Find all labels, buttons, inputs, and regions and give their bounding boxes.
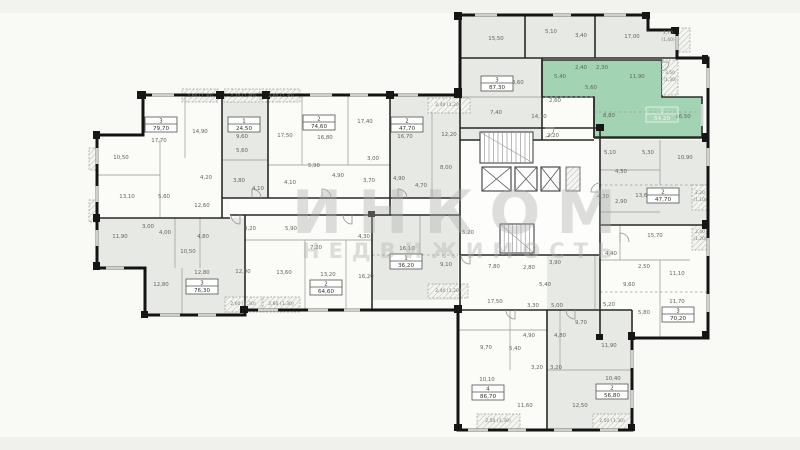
unit-area: 74,60: [311, 124, 327, 130]
room-area-label: 3,00: [142, 224, 155, 230]
room-area-label: 4,80: [197, 234, 210, 240]
room-area-label: 3,40: [575, 33, 588, 39]
floor-plan: 17,7014,9010,5013,104,205,6012,609,605,6…: [0, 0, 800, 450]
room-area-label: 5,60: [585, 85, 598, 91]
room-area-label: 15,70: [647, 233, 663, 239]
balcony-label: 3,50: [665, 70, 675, 76]
room-area-label: 12,80: [153, 282, 169, 288]
unit-area: 87,30: [489, 85, 505, 91]
unit-area: 47,70: [655, 197, 671, 203]
room-area-label: 17,50: [277, 133, 293, 139]
balcony-label: 2,40 (1,20): [435, 102, 461, 108]
unit-label[interactable]: 486,70: [472, 385, 504, 400]
balcony-label: 2,50 (1,30): [485, 418, 511, 424]
unit-area: 76,30: [194, 288, 210, 294]
room-area-label: 12,50: [572, 403, 588, 409]
balcony-label: 2,50 (1,30): [599, 418, 625, 424]
unit-area: 47,70: [399, 126, 415, 132]
balcony-label: 2,40 (1,20): [435, 288, 461, 294]
room-area-label: 16,70: [397, 134, 413, 140]
structural-column: [141, 311, 148, 318]
unit-rooms-count: 3: [676, 309, 679, 315]
room-area-label: 5,90: [308, 163, 321, 169]
unit-label[interactable]: 274,60: [303, 115, 335, 130]
room-area-label: 4,00: [159, 230, 172, 236]
balcony-label: 2,60 (1,30): [268, 301, 294, 307]
apartment-area: [458, 255, 547, 430]
watermark-line2: НЕДВИЖИМОСТЬ: [302, 239, 622, 263]
unit-label[interactable]: 247,70: [647, 188, 679, 203]
unit-label[interactable]: 370,20: [662, 307, 694, 322]
room-area-label: 11,60: [517, 403, 533, 409]
room-area-label: 13,20: [320, 272, 336, 278]
room-area-label: 10,90: [677, 155, 693, 161]
room-area-label: 17,40: [357, 119, 373, 125]
room-area-label: 2,20: [547, 133, 560, 139]
balcony-label: (1,20): [693, 236, 706, 242]
room-area-label: 11,10: [669, 271, 685, 277]
structural-column: [596, 334, 603, 340]
room-area-label: 3,20: [531, 365, 544, 371]
floor-plan-page: 17,7014,9010,5013,104,205,6012,609,605,6…: [0, 0, 800, 450]
room-area-label: 9,60: [236, 134, 249, 140]
structural-column: [702, 220, 708, 229]
unit-label[interactable]: 379,70: [145, 117, 177, 132]
structural-column: [93, 131, 100, 139]
room-area-label: 3,20: [550, 365, 563, 371]
room-area-label: 9,70: [480, 345, 493, 351]
balcony-label: 2,60 (1,30): [187, 93, 213, 99]
room-area-label: 5,80: [638, 310, 651, 316]
unit-label[interactable]: 247,70: [391, 117, 423, 132]
unit-area: 64,60: [318, 289, 334, 295]
balcony: [678, 28, 690, 52]
room-area-label: 10,10: [479, 377, 495, 383]
room-area-label: 11,70: [669, 299, 685, 305]
structural-column: [137, 91, 146, 99]
balcony-label: (1,40): [661, 37, 674, 43]
structural-column: [702, 331, 708, 339]
room-area-label: 14,90: [192, 129, 208, 135]
balcony-label: (1,30): [663, 77, 676, 83]
room-area-label: 12,00: [235, 269, 251, 275]
structural-column: [596, 124, 604, 131]
structural-column: [628, 332, 635, 340]
room-area-label: 4,50: [615, 169, 628, 175]
room-area-label: 8,80: [603, 113, 616, 119]
structural-column: [216, 91, 224, 99]
room-area-label: 5,10: [545, 29, 558, 35]
room-area-label: 5,40: [509, 346, 522, 352]
balcony-label: 2,20: [695, 190, 705, 196]
unit-rooms-count: 2: [324, 282, 327, 288]
room-area-label: 9,70: [575, 320, 588, 326]
room-area-label: 4,10: [252, 186, 265, 192]
unit-label[interactable]: 124,50: [228, 117, 260, 132]
room-area-label: 5,40: [554, 74, 567, 80]
structural-column: [454, 12, 462, 20]
room-area-label: 4,80: [554, 333, 567, 339]
balcony-label: 2,60 (1,30): [268, 93, 294, 99]
unit-area: 56,80: [604, 393, 620, 399]
room-area-label: 4,90: [523, 333, 536, 339]
unit-area: 79,70: [153, 126, 169, 132]
room-area-label: 11,90: [629, 74, 645, 80]
balcony-label: 2,70 (1,40): [230, 93, 256, 99]
room-area-label: 11,90: [112, 234, 128, 240]
room-area-label: 13,10: [119, 194, 135, 200]
balcony-label: 2,60 (1,30): [230, 301, 256, 307]
room-area-label: 10,50: [113, 155, 129, 161]
unit-rooms-count: 3: [159, 119, 162, 125]
balcony-label: (1,10): [693, 197, 706, 203]
unit-rooms-count: 2: [405, 119, 408, 125]
unit-area: 70,20: [670, 316, 686, 322]
unit-rooms-count: 1: [242, 119, 245, 125]
room-area-label: 16,80: [317, 135, 333, 141]
unit-rooms-count: 3: [495, 78, 498, 84]
room-area-label: 7,80: [488, 264, 501, 270]
room-area-label: 17,00: [624, 34, 640, 40]
unit-label[interactable]: 256,80: [596, 384, 628, 399]
room-area-label: 7,40: [490, 110, 503, 116]
unit-label[interactable]: 387,30: [481, 76, 513, 91]
room-area-label: 13,60: [276, 270, 292, 276]
balcony-label: 2,70: [663, 30, 673, 36]
room-area-label: 8,00: [440, 165, 453, 171]
room-area-label: 5,30: [642, 150, 655, 156]
unit-rooms-count: 3: [200, 281, 203, 287]
unit-label[interactable]: 254,20: [646, 107, 678, 122]
room-area-label: 2,50: [638, 264, 651, 270]
structural-column: [454, 88, 462, 98]
unit-area: 36,20: [398, 263, 414, 269]
structural-column: [93, 214, 100, 222]
room-area-label: 2,80: [523, 265, 536, 271]
room-area-label: 12,60: [194, 203, 210, 209]
structural-column: [702, 55, 708, 64]
room-area-label: 4,20: [200, 175, 213, 181]
room-area-label: 12,20: [441, 132, 457, 138]
room-area-label: 5,20: [603, 302, 616, 308]
room-area-label: 5,60: [236, 148, 249, 154]
room-area-label: 3,20: [244, 226, 257, 232]
room-area-label: 14,10: [531, 114, 547, 120]
room-area-label: 17,50: [487, 299, 503, 305]
room-area-label: 15,50: [488, 36, 504, 42]
room-area-label: 17,70: [151, 138, 167, 144]
watermark-line1: ИНКОМ: [292, 178, 632, 248]
room-area-label: 2,30: [596, 65, 609, 71]
room-area-label: 5,60: [158, 194, 171, 200]
room-area-label: 3,30: [527, 303, 540, 309]
structural-column: [702, 133, 708, 142]
room-area-label: 2,60: [549, 98, 562, 104]
structural-column: [628, 424, 635, 431]
unit-rooms-count: 2: [661, 190, 664, 196]
unit-area: 86,70: [480, 394, 496, 400]
unit-label[interactable]: 264,60: [310, 280, 342, 295]
room-area-label: 3,80: [233, 178, 246, 184]
room-area-label: 5,10: [604, 150, 617, 156]
unit-area: 54,20: [654, 116, 670, 122]
balcony-label: 2,40: [695, 229, 705, 235]
room-area-label: 2,40: [575, 65, 588, 71]
room-area-label: 5,00: [551, 303, 564, 309]
room-area-label: 3,00: [367, 156, 380, 162]
structural-column: [454, 305, 462, 313]
structural-column: [240, 306, 248, 313]
room-area-label: 11,90: [601, 343, 617, 349]
room-area-label: 9,60: [623, 282, 636, 288]
unit-rooms-count: 4: [486, 387, 490, 393]
room-area-label: 16,20: [358, 274, 374, 280]
watermark: ИНКОМ НЕДВИЖИМОСТЬ: [292, 178, 632, 263]
structural-column: [386, 91, 394, 99]
room-area-label: 10,50: [180, 249, 196, 255]
room-area-label: 12,80: [194, 270, 210, 276]
unit-rooms-count: 2: [610, 386, 613, 392]
room-area-label: 5,40: [539, 282, 552, 288]
structural-column: [642, 12, 650, 19]
structural-column: [454, 424, 462, 431]
structural-column: [93, 262, 100, 270]
unit-area: 24,50: [236, 126, 252, 132]
unit-label[interactable]: 376,30: [186, 279, 218, 294]
room-area-label: 10,40: [605, 376, 621, 382]
unit-rooms-count: 2: [317, 117, 320, 123]
unit-rooms-count: 2: [660, 109, 663, 115]
